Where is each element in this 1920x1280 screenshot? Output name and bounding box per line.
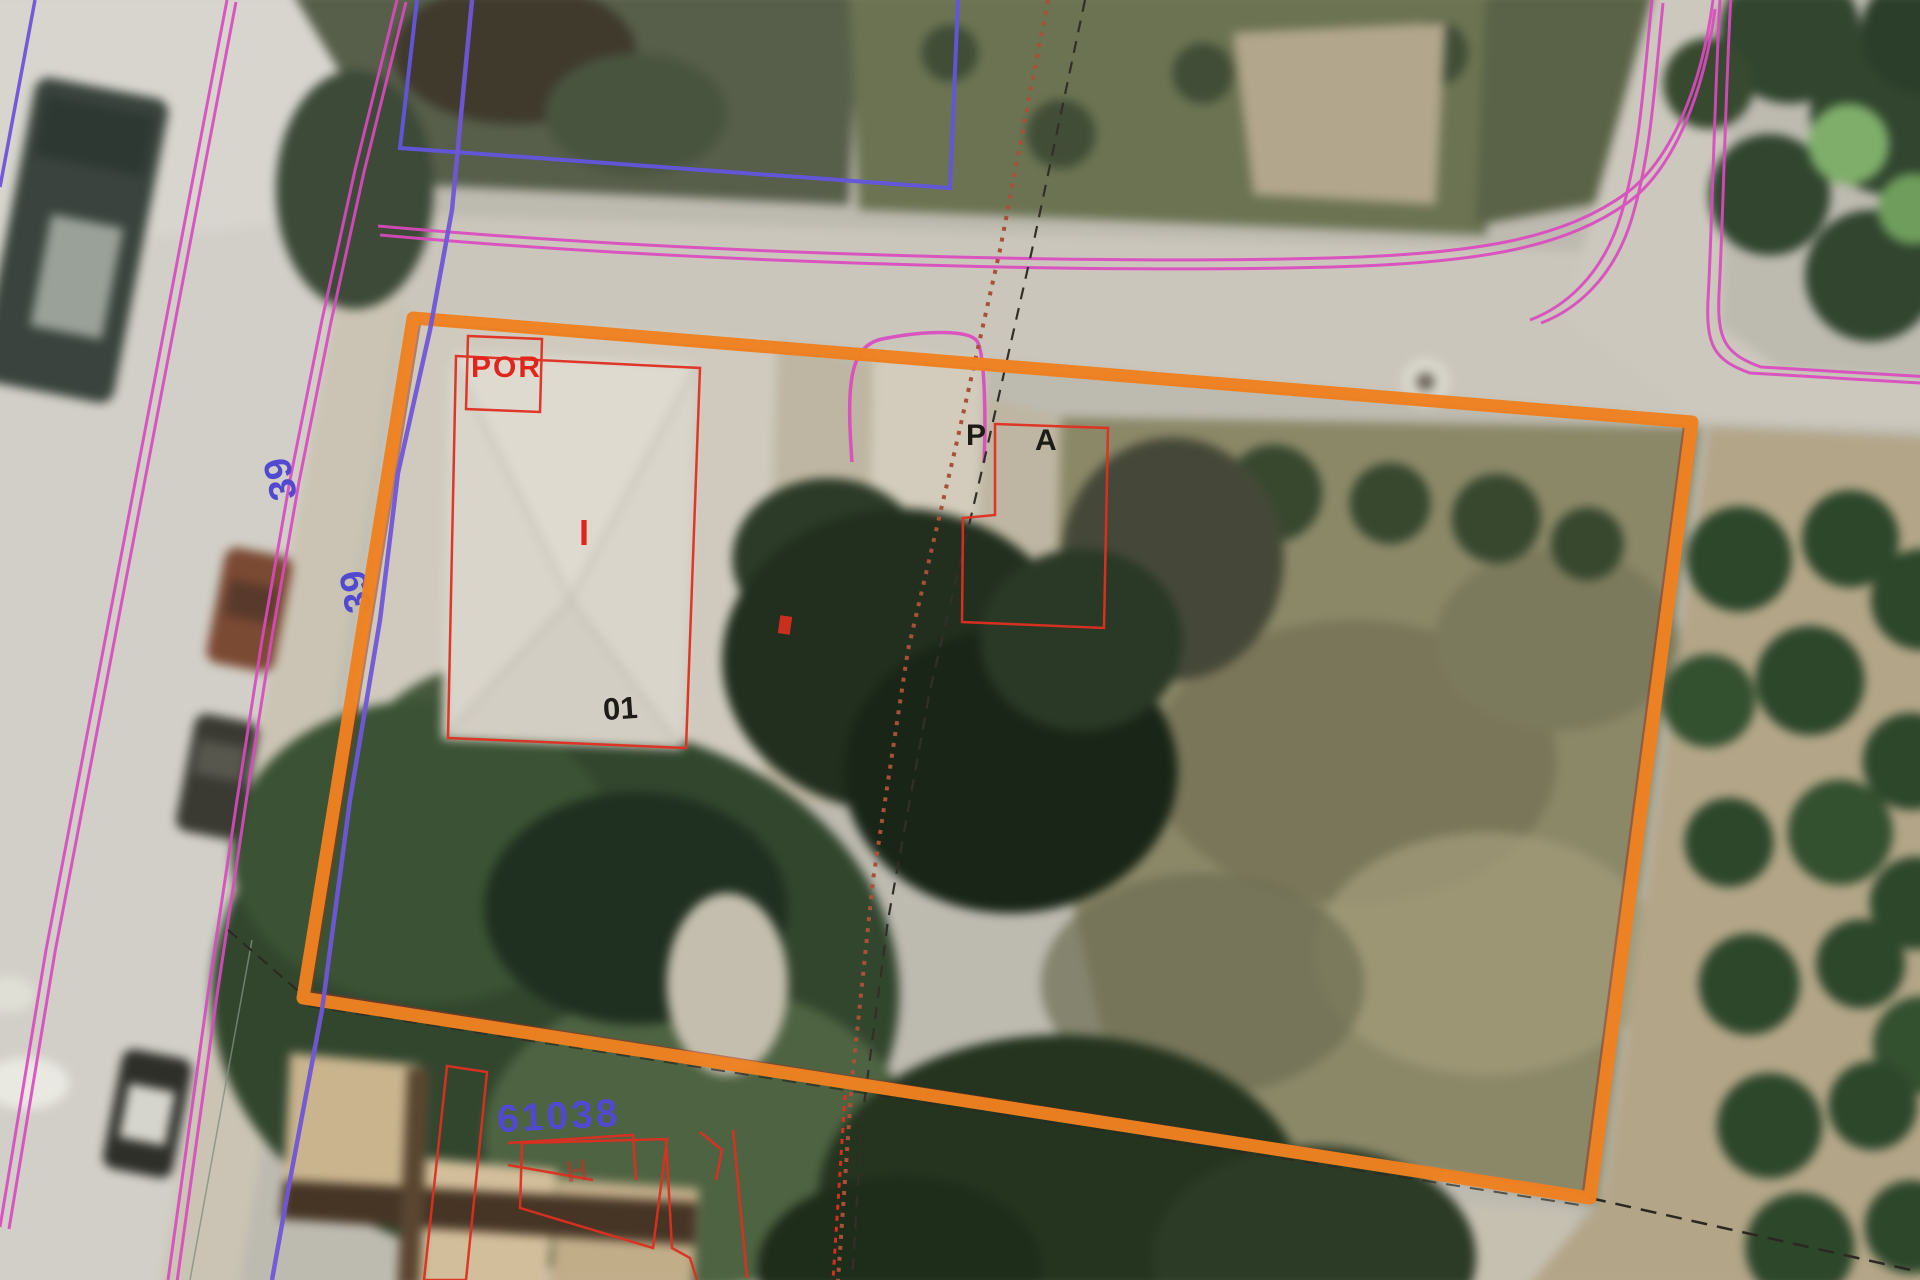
building-roof-left bbox=[442, 353, 697, 750]
street-tree bbox=[276, 70, 434, 309]
aerial-photo-art bbox=[0, 0, 1920, 1280]
aerial-photo bbox=[0, 0, 1920, 1280]
map-canvas[interactable]: 39 POR I 01 P A 39 61038 H bbox=[0, 0, 1920, 1280]
street-number-partial-label: 39 bbox=[332, 567, 382, 616]
